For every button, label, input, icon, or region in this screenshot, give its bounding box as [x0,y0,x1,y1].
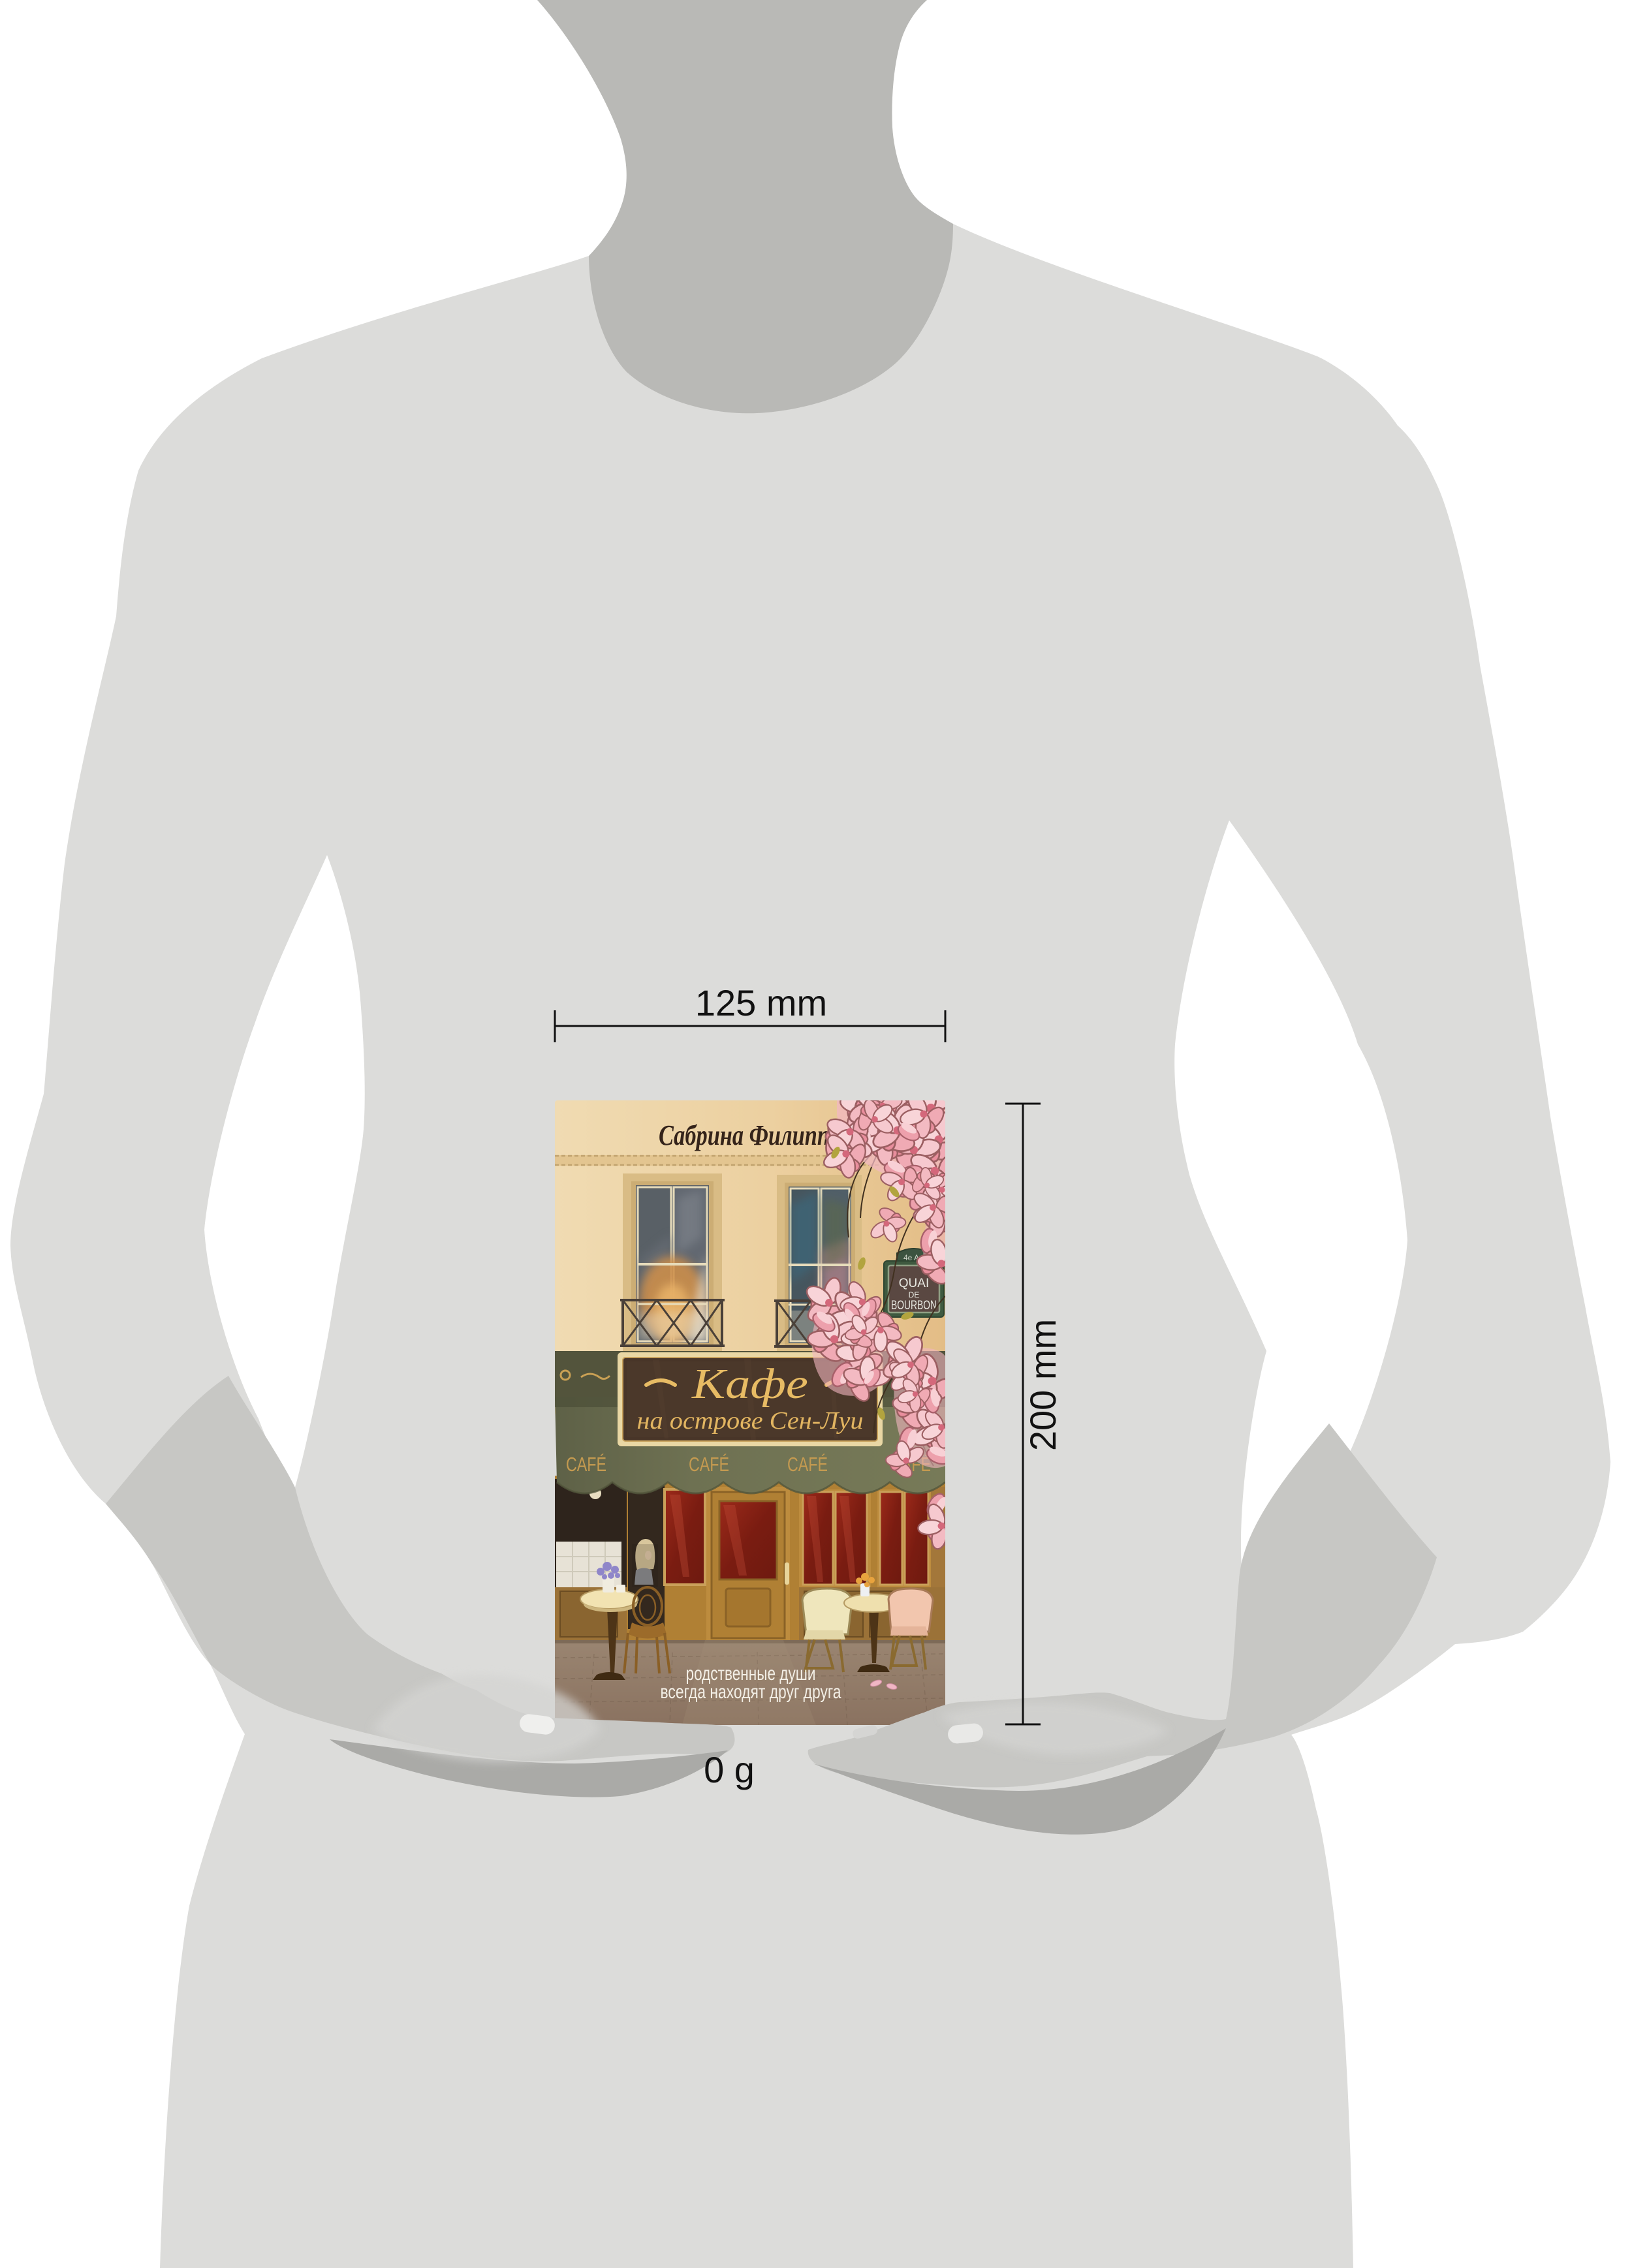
svg-text:Сабрина Филипп: Сабрина Филипп [659,1119,830,1151]
svg-text:0 g: 0 g [704,1749,755,1790]
svg-text:CAFÉ: CAFÉ [566,1453,606,1476]
svg-text:DE: DE [909,1290,920,1299]
svg-text:BOURBON: BOURBON [891,1299,937,1313]
svg-text:125 mm: 125 mm [695,982,827,1023]
svg-text:Кафе: Кафе [691,1360,808,1408]
svg-text:CAFÉ: CAFÉ [689,1453,729,1476]
svg-text:CAFÉ: CAFÉ [787,1453,828,1476]
svg-text:всегда находят друг друга: всегда находят друг друга [661,1681,841,1703]
svg-text:200 mm: 200 mm [1022,1319,1063,1451]
svg-text:на острове Сен-Луи: на острове Сен-Луи [637,1407,864,1435]
svg-text:QUAI: QUAI [899,1277,929,1290]
